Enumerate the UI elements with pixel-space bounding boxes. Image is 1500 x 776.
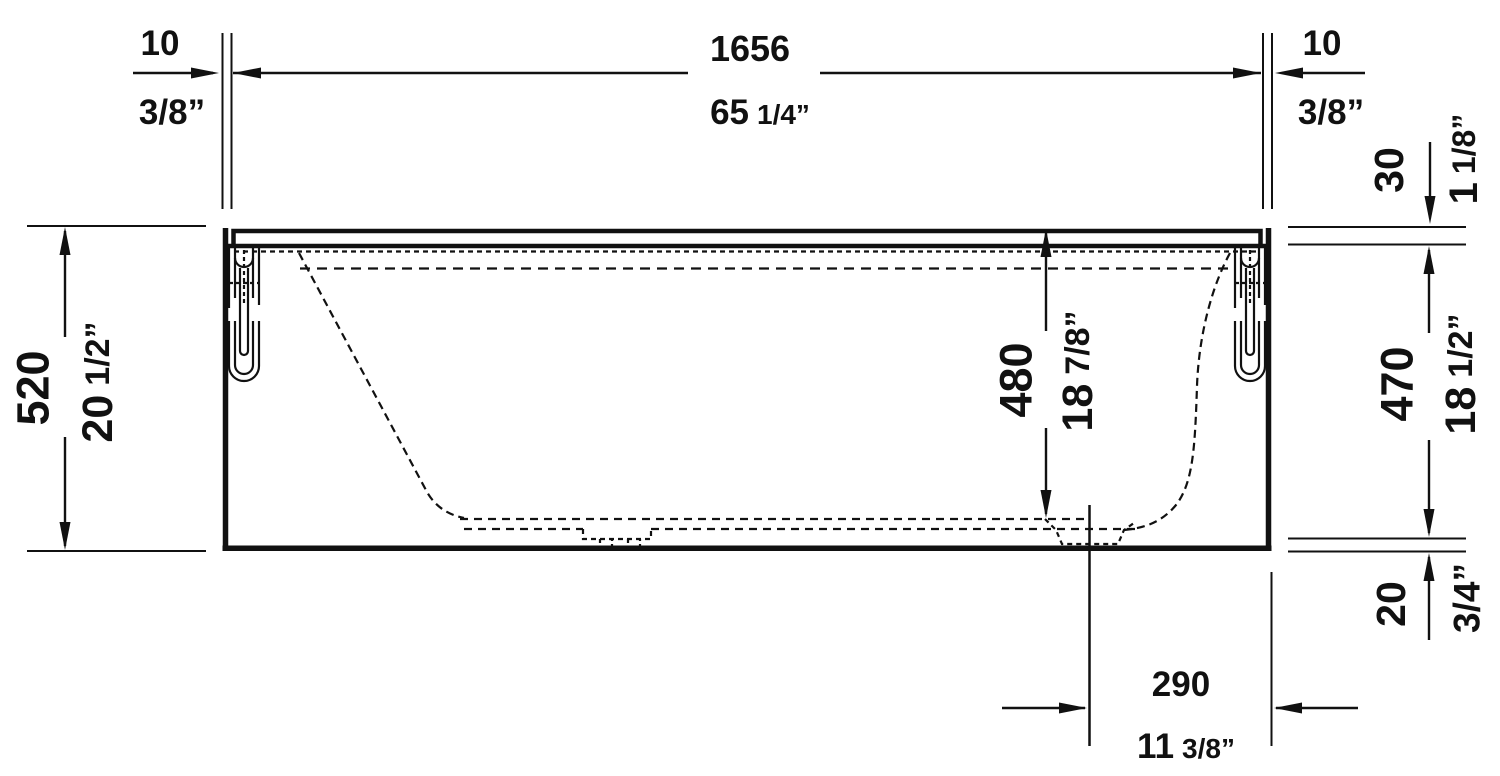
label-drain-offset-metric: 290: [1152, 665, 1210, 704]
dim-inner-depth: [1041, 229, 1052, 518]
label-rim-overhang-right-metric: 10: [1303, 24, 1342, 63]
dim-rim-overhang-right: [1275, 68, 1365, 79]
floor-recess: [583, 529, 651, 539]
drawing-canvas: 1656 651/4” 10 3/8” 10 3/8” 520 201/2” 4…: [0, 0, 1500, 776]
label-shell-height-metric: 470: [1372, 346, 1423, 421]
dim-overall-length: [233, 68, 1261, 79]
tub-hidden-lines: [234, 252, 1260, 549]
label-base-clearance-metric: 20: [1368, 581, 1414, 627]
label-overall-height-imperial: 201/2”: [74, 321, 122, 442]
label-rim-overhang-left-metric: 10: [141, 24, 180, 63]
dim-base-clearance: [1424, 553, 1435, 640]
dim-shell-height: [1424, 246, 1435, 537]
overflow-fitting-left: [229, 247, 259, 381]
label-inner-depth-metric: 480: [991, 342, 1042, 417]
dim-rim-height: [1425, 142, 1436, 224]
tub-rim: [228, 231, 1266, 246]
inner-slope-left: [299, 253, 464, 518]
label-shell-height-imperial: 181/2”: [1437, 313, 1485, 434]
label-rim-overhang-left-imperial: 3/8”: [139, 93, 205, 132]
bathtub-dimension-drawing: 1656 651/4” 10 3/8” 10 3/8” 520 201/2” 4…: [0, 0, 1500, 776]
label-drain-offset-imperial: 113/8”: [1137, 727, 1235, 766]
label-base-clearance-imperial: 3/4”: [1447, 563, 1488, 633]
rim-top-edge: [234, 231, 1261, 244]
tub-outline: [223, 228, 1272, 548]
label-overall-length-metric: 1656: [710, 28, 790, 69]
label-overall-length-imperial: 651/4”: [710, 93, 810, 132]
label-rim-overhang-right-imperial: 3/8”: [1298, 93, 1364, 132]
dimension-labels: 1656 651/4” 10 3/8” 10 3/8” 520 201/2” 4…: [8, 24, 1488, 766]
dim-overall-height: [60, 227, 71, 550]
label-rim-height-imperial: 11/8”: [1442, 114, 1486, 205]
dim-drain-offset: [1002, 703, 1358, 714]
extension-lines: [27, 33, 1466, 746]
label-rim-height-metric: 30: [1366, 147, 1412, 193]
dim-rim-overhang-left: [133, 68, 219, 79]
dimension-lines: [60, 68, 1436, 714]
inner-slope-right: [1124, 253, 1230, 530]
label-overall-height-metric: 520: [8, 350, 59, 425]
label-inner-depth-imperial: 187/8”: [1054, 310, 1102, 431]
overflow-fitting-right: [1235, 247, 1265, 381]
